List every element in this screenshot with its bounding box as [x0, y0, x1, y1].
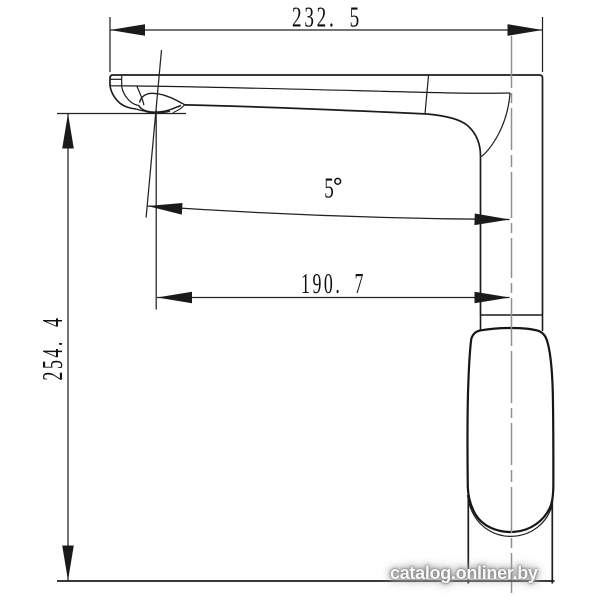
svg-text:254. 4: 254. 4	[38, 316, 69, 381]
svg-text:5: 5	[324, 174, 334, 205]
svg-text:232. 5: 232. 5	[292, 3, 362, 34]
svg-text:190. 7: 190. 7	[301, 269, 366, 300]
